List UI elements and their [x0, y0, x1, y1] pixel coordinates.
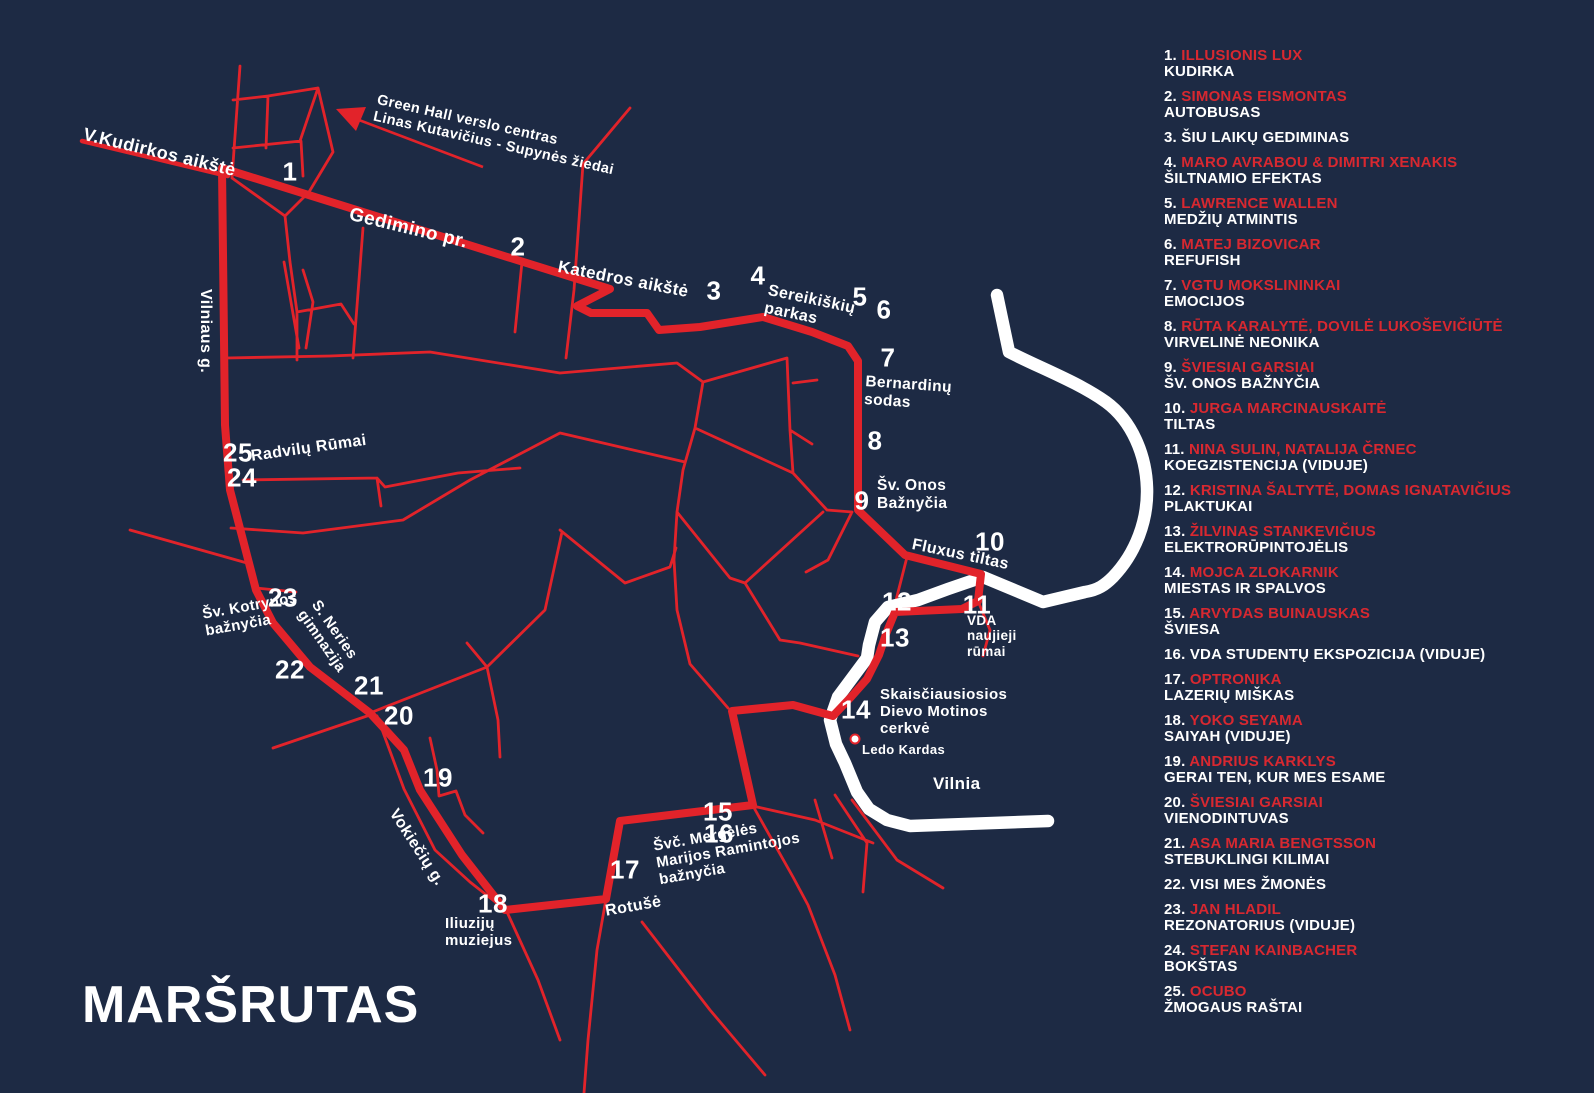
- legend-item-work: REFUFISH: [1164, 253, 1584, 269]
- legend-item-artist: OPTRONIKA: [1190, 671, 1282, 688]
- legend-item-artist: JURGA MARCINAUSKAITĖ: [1190, 400, 1387, 417]
- legend-item-artist: NINA SULIN, NATALIJA ČRNEC: [1189, 441, 1417, 458]
- legend-item-number: 15.: [1164, 605, 1185, 622]
- legend-item-number: 17.: [1164, 671, 1185, 688]
- legend-item-headline: 14. MOJCA ZLOKARNIK: [1164, 565, 1584, 581]
- legend-item-headline: 9. ŠVIESIAI GARSIAI: [1164, 360, 1584, 376]
- legend-item-number: 13.: [1164, 523, 1185, 540]
- stop-marker-23: 23: [268, 583, 298, 614]
- stop-marker-25: 25: [223, 438, 253, 469]
- legend-item: 5. LAWRENCE WALLEN MEDŽIŲ ATMINTIS: [1164, 196, 1584, 228]
- legend-item-work: TILTAS: [1164, 417, 1584, 433]
- legend-item-headline: 11. NINA SULIN, NATALIJA ČRNEC: [1164, 442, 1584, 458]
- map-label-ledo-kardas: Ledo Kardas: [862, 743, 945, 758]
- legend-item-work: LAZERIŲ MIŠKAS: [1164, 688, 1584, 704]
- legend-item: 24. STEFAN KAINBACHER BOKŠTAS: [1164, 943, 1584, 975]
- legend-item: 18. YOKO SEYAMA SAIYAH (VIDUJE): [1164, 713, 1584, 745]
- legend-item-work: PLAKTUKAI: [1164, 499, 1584, 515]
- legend-item: 8. RŪTA KARALYTĖ, DOVILĖ LUKOŠEVIČIŪTĖ V…: [1164, 319, 1584, 351]
- legend-item-artist: JAN HLADIL: [1190, 901, 1281, 918]
- legend-item-number: 4.: [1164, 154, 1177, 171]
- legend-item: 16. VDA STUDENTŲ EKSPOZICIJA (VIDUJE): [1164, 647, 1584, 663]
- legend-item-headline: 20. ŠVIESIAI GARSIAI: [1164, 795, 1584, 811]
- legend-item-work: BOKŠTAS: [1164, 959, 1584, 975]
- legend-item: 12. KRISTINA ŠALTYTĖ, DOMAS IGNATAVIČIUS…: [1164, 483, 1584, 515]
- legend-item-artist: ASA MARIA BENGTSSON: [1189, 835, 1376, 852]
- legend-item-artist: LAWRENCE WALLEN: [1181, 195, 1337, 212]
- legend-item-work: ŠV. ONOS BAŽNYČIA: [1164, 376, 1584, 392]
- legend-item: 22. VISI MES ŽMONĖS: [1164, 877, 1584, 893]
- legend-item-number: 19.: [1164, 753, 1185, 770]
- legend-item-number: 8.: [1164, 318, 1177, 335]
- legend-item-artist: KRISTINA ŠALTYTĖ, DOMAS IGNATAVIČIUS: [1190, 482, 1511, 499]
- stop-marker-2: 2: [511, 232, 526, 263]
- legend-item-number: 11.: [1164, 441, 1185, 458]
- legend-item-number: 9.: [1164, 359, 1177, 376]
- stop-marker-9: 9: [855, 486, 870, 517]
- legend-item-work: MIESTAS IR SPALVOS: [1164, 581, 1584, 597]
- legend-item-headline: 17. OPTRONIKA: [1164, 672, 1584, 688]
- stop-marker-10: 10: [975, 527, 1005, 558]
- legend-item-number: 3.: [1164, 129, 1177, 146]
- legend-item-artist: ARVYDAS BUINAUSKAS: [1189, 605, 1370, 622]
- legend-item: 3. ŠIU LAIKŲ GEDIMINAS: [1164, 130, 1584, 146]
- legend-item-artist: ŽILVINAS STANKEVIČIUS: [1190, 523, 1376, 540]
- legend-item-number: 22.: [1164, 876, 1185, 893]
- legend-item-number: 7.: [1164, 277, 1177, 294]
- legend-item-number: 14.: [1164, 564, 1185, 581]
- legend-item-number: 25.: [1164, 983, 1185, 1000]
- stop-marker-20: 20: [384, 701, 414, 732]
- legend-item-headline: 4. MARO AVRABOU & DIMITRI XENAKIS: [1164, 155, 1584, 171]
- legend-item: 1. ILLUSIONIS LUX KUDIRKA: [1164, 48, 1584, 80]
- legend-item-work: ELEKTRORŪPINTOJĖLIS: [1164, 540, 1584, 556]
- legend-item-number: 24.: [1164, 942, 1185, 959]
- legend-item: 21. ASA MARIA BENGTSSON STEBUKLINGI KILI…: [1164, 836, 1584, 868]
- legend-item-work: ŠVIESA: [1164, 622, 1584, 638]
- legend-item-number: 18.: [1164, 712, 1185, 729]
- stop-marker-6: 6: [877, 295, 892, 326]
- map-label-sv-onos-baznycia: Šv. Onos Bažnyčia: [877, 477, 947, 512]
- legend-item-work: ŠILTNAMIO EFEKTAS: [1164, 171, 1584, 187]
- legend-item-headline: 3. ŠIU LAIKŲ GEDIMINAS: [1164, 130, 1584, 146]
- stop-marker-19: 19: [423, 763, 453, 794]
- legend-item: 6. MATEJ BIZOVICAR REFUFISH: [1164, 237, 1584, 269]
- legend-item-number: 21.: [1164, 835, 1185, 852]
- legend-item-number: 1.: [1164, 47, 1177, 64]
- stop-marker-16: 16: [704, 819, 734, 850]
- stop-marker-12: 12: [882, 587, 912, 618]
- stop-marker-5: 5: [853, 282, 868, 313]
- legend-item-headline: 12. KRISTINA ŠALTYTĖ, DOMAS IGNATAVIČIUS: [1164, 483, 1584, 499]
- stop-marker-17: 17: [610, 855, 640, 886]
- legend-item-artist: RŪTA KARALYTĖ, DOVILĖ LUKOŠEVIČIŪTĖ: [1181, 318, 1502, 335]
- stop-marker-3: 3: [707, 276, 722, 307]
- legend-item-headline: 8. RŪTA KARALYTĖ, DOVILĖ LUKOŠEVIČIŪTĖ: [1164, 319, 1584, 335]
- legend-item-work: AUTOBUSAS: [1164, 105, 1584, 121]
- legend-item-headline: 1. ILLUSIONIS LUX: [1164, 48, 1584, 64]
- legend-item-headline: 10. JURGA MARCINAUSKAITĖ: [1164, 401, 1584, 417]
- legend-item-headline: 6. MATEJ BIZOVICAR: [1164, 237, 1584, 253]
- legend-item-headline: 18. YOKO SEYAMA: [1164, 713, 1584, 729]
- legend-item-headline: 25. OCUBO: [1164, 984, 1584, 1000]
- street-network-lines: [130, 66, 990, 1093]
- legend-item-headline: 2. SIMONAS EISMONTAS: [1164, 89, 1584, 105]
- legend-item-work: ŽMOGAUS RAŠTAI: [1164, 1000, 1584, 1016]
- legend-item-headline: 5. LAWRENCE WALLEN: [1164, 196, 1584, 212]
- legend-item: 7. VGTU MOKSLININKAI EMOCIJOS: [1164, 278, 1584, 310]
- stop-marker-8: 8: [868, 426, 883, 457]
- legend-item-work: KOEGZISTENCIJA (VIDUJE): [1164, 458, 1584, 474]
- legend-item-number: 16.: [1164, 646, 1185, 663]
- legend-item-headline: 23. JAN HLADIL: [1164, 902, 1584, 918]
- legend-item: 4. MARO AVRABOU & DIMITRI XENAKIS ŠILTNA…: [1164, 155, 1584, 187]
- legend-item: 10. JURGA MARCINAUSKAITĖ TILTAS: [1164, 401, 1584, 433]
- legend-item-headline: 7. VGTU MOKSLININKAI: [1164, 278, 1584, 294]
- legend-item-number: 2.: [1164, 88, 1177, 105]
- stop-marker-14: 14: [841, 695, 871, 726]
- legend-item-artist: ŠIU LAIKŲ GEDIMINAS: [1181, 129, 1349, 146]
- legend-item-artist: ANDRIUS KARKLYS: [1189, 753, 1336, 770]
- legend-item-number: 12.: [1164, 482, 1185, 499]
- legend-item: 25. OCUBO ŽMOGAUS RAŠTAI: [1164, 984, 1584, 1016]
- stop-marker-11: 11: [963, 590, 992, 621]
- legend-item-work: SAIYAH (VIDUJE): [1164, 729, 1584, 745]
- legend-panel: 1. ILLUSIONIS LUX KUDIRKA 2. SIMONAS EIS…: [1164, 48, 1584, 1025]
- stop-marker-7: 7: [881, 343, 896, 374]
- legend-item-artist: ILLUSIONIS LUX: [1181, 47, 1302, 64]
- legend-item: 23. JAN HLADIL REZONATORIUS (VIDUJE): [1164, 902, 1584, 934]
- legend-item: 17. OPTRONIKA LAZERIŲ MIŠKAS: [1164, 672, 1584, 704]
- legend-item: 9. ŠVIESIAI GARSIAI ŠV. ONOS BAŽNYČIA: [1164, 360, 1584, 392]
- legend-item-work: VIENODINTUVAS: [1164, 811, 1584, 827]
- legend-item-headline: 21. ASA MARIA BENGTSSON: [1164, 836, 1584, 852]
- legend-item: 15. ARVYDAS BUINAUSKAS ŠVIESA: [1164, 606, 1584, 638]
- legend-item-headline: 24. STEFAN KAINBACHER: [1164, 943, 1584, 959]
- map-label-vilniaus-g: Vilniaus g.: [196, 289, 214, 373]
- legend-item-number: 23.: [1164, 901, 1185, 918]
- legend-item-headline: 13. ŽILVINAS STANKEVIČIUS: [1164, 524, 1584, 540]
- map-label-vilnia: Vilnia: [933, 774, 980, 793]
- legend-item-artist: MARO AVRABOU & DIMITRI XENAKIS: [1181, 154, 1457, 171]
- stop-marker-13: 13: [880, 623, 910, 654]
- ledo-kardas-dot: [851, 735, 860, 744]
- stop-marker-21: 21: [354, 671, 384, 702]
- legend-item: 13. ŽILVINAS STANKEVIČIUS ELEKTRORŪPINTO…: [1164, 524, 1584, 556]
- legend-item-work: GERAI TEN, KUR MES ESAME: [1164, 770, 1584, 786]
- legend-item-artist: MATEJ BIZOVICAR: [1181, 236, 1320, 253]
- stop-marker-1: 1: [283, 157, 298, 188]
- legend-item: 20. ŠVIESIAI GARSIAI VIENODINTUVAS: [1164, 795, 1584, 827]
- stop-marker-4: 4: [751, 261, 766, 292]
- legend-item-artist: STEFAN KAINBACHER: [1190, 942, 1358, 959]
- stop-marker-18: 18: [478, 889, 508, 920]
- legend-item-headline: 16. VDA STUDENTŲ EKSPOZICIJA (VIDUJE): [1164, 647, 1584, 663]
- legend-item: 2. SIMONAS EISMONTAS AUTOBUSAS: [1164, 89, 1584, 121]
- page-title: MARŠRUTAS: [82, 975, 419, 1035]
- legend-item-headline: 19. ANDRIUS KARKLYS: [1164, 754, 1584, 770]
- legend-item: 11. NINA SULIN, NATALIJA ČRNEC KOEGZISTE…: [1164, 442, 1584, 474]
- legend-item-work: KUDIRKA: [1164, 64, 1584, 80]
- legend-item-artist: OCUBO: [1190, 983, 1247, 1000]
- legend-item-artist: YOKO SEYAMA: [1190, 712, 1303, 729]
- legend-item-number: 10.: [1164, 400, 1185, 417]
- legend-item-work: REZONATORIUS (VIDUJE): [1164, 918, 1584, 934]
- legend-item-headline: 22. VISI MES ŽMONĖS: [1164, 877, 1584, 893]
- legend-item-artist: ŠVIESIAI GARSIAI: [1181, 359, 1314, 376]
- legend-item-work: STEBUKLINGI KILIMAI: [1164, 852, 1584, 868]
- legend-item: 14. MOJCA ZLOKARNIK MIESTAS IR SPALVOS: [1164, 565, 1584, 597]
- map-label-skaisciausiosios-cerkve: Skaisčiausiosios Dievo Motinos cerkvė: [880, 686, 1007, 737]
- map-label-bernardinu-sodas: Bernardinų sodas: [864, 373, 953, 414]
- legend-item-headline: 15. ARVYDAS BUINAUSKAS: [1164, 606, 1584, 622]
- legend-item-work: EMOCIJOS: [1164, 294, 1584, 310]
- map-label-iliuziju-muziejus: Iliuzijų muziejus: [445, 915, 512, 949]
- stop-marker-22: 22: [275, 655, 305, 686]
- legend-item-artist: MOJCA ZLOKARNIK: [1190, 564, 1339, 581]
- legend-item-work: VIRVELINĖ NEONIKA: [1164, 335, 1584, 351]
- legend-item-work: MEDŽIŲ ATMINTIS: [1164, 212, 1584, 228]
- legend-item-artist: VGTU MOKSLININKAI: [1181, 277, 1340, 294]
- legend-item-artist: SIMONAS EISMONTAS: [1181, 88, 1347, 105]
- legend-item-artist: VDA STUDENTŲ EKSPOZICIJA (VIDUJE): [1190, 646, 1486, 663]
- legend-item: 19. ANDRIUS KARKLYS GERAI TEN, KUR MES E…: [1164, 754, 1584, 786]
- legend-item-number: 5.: [1164, 195, 1177, 212]
- legend-item-number: 20.: [1164, 794, 1185, 811]
- green-hall-arrowhead: [336, 107, 366, 131]
- legend-item-artist: ŠVIESIAI GARSIAI: [1190, 794, 1323, 811]
- legend-item-artist: VISI MES ŽMONĖS: [1190, 876, 1326, 893]
- legend-item-number: 6.: [1164, 236, 1177, 253]
